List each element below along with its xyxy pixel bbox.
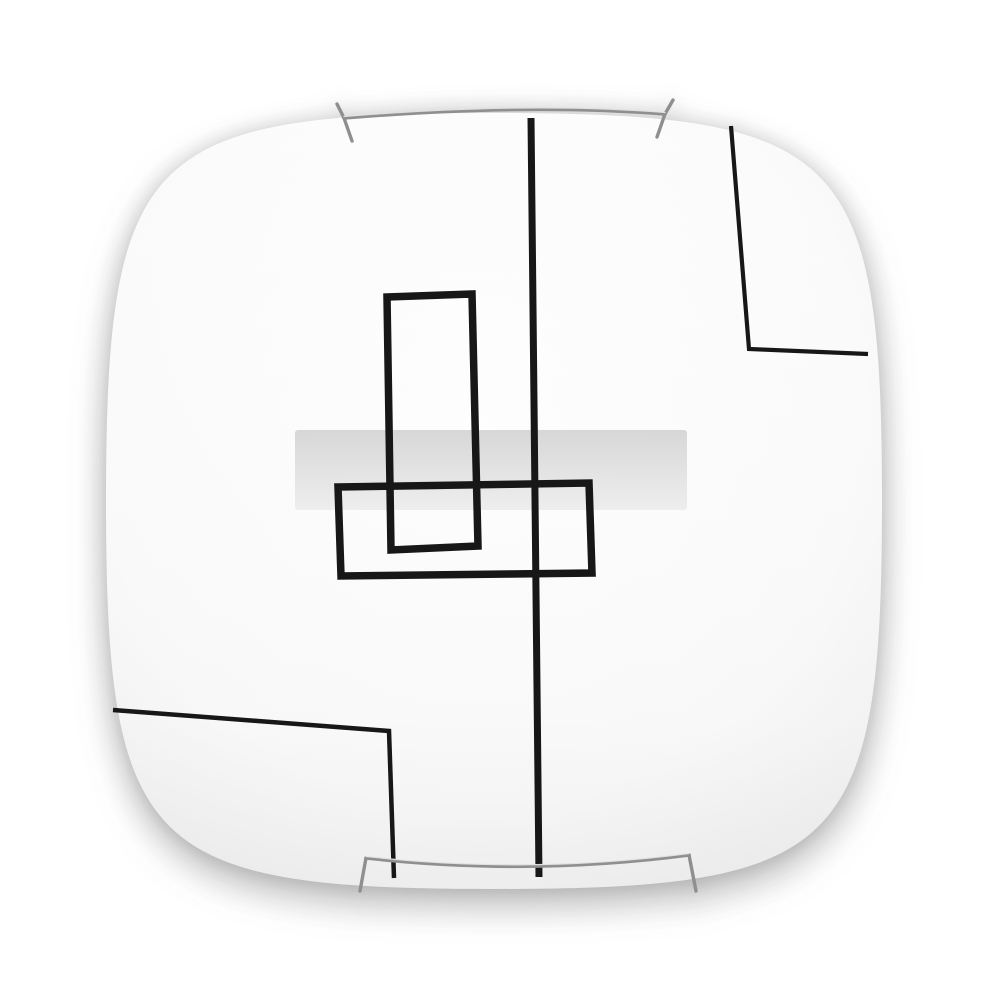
frosted-band bbox=[295, 430, 687, 510]
product-photo bbox=[0, 0, 1000, 1000]
lamp-illustration bbox=[0, 0, 1000, 1000]
lamp-body bbox=[106, 100, 882, 891]
